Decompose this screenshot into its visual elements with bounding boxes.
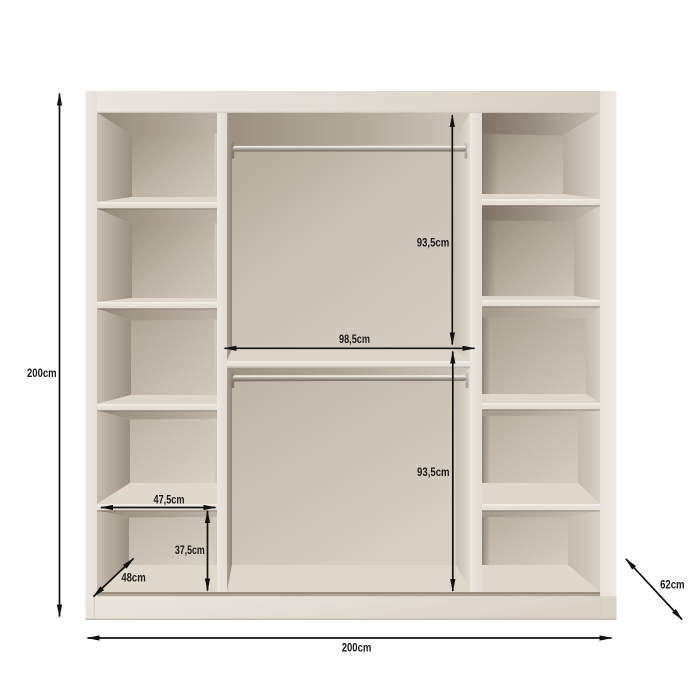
svg-text:93,5cm: 93,5cm: [417, 466, 450, 479]
svg-text:47,5cm: 47,5cm: [154, 493, 185, 506]
svg-text:200cm: 200cm: [342, 642, 372, 655]
svg-text:98,5cm: 98,5cm: [339, 333, 370, 346]
svg-text:37,5cm: 37,5cm: [175, 544, 205, 558]
svg-text:93,5cm: 93,5cm: [417, 236, 450, 249]
svg-text:62cm: 62cm: [660, 579, 684, 592]
svg-text:48cm: 48cm: [121, 571, 145, 584]
svg-text:200cm: 200cm: [27, 367, 57, 380]
